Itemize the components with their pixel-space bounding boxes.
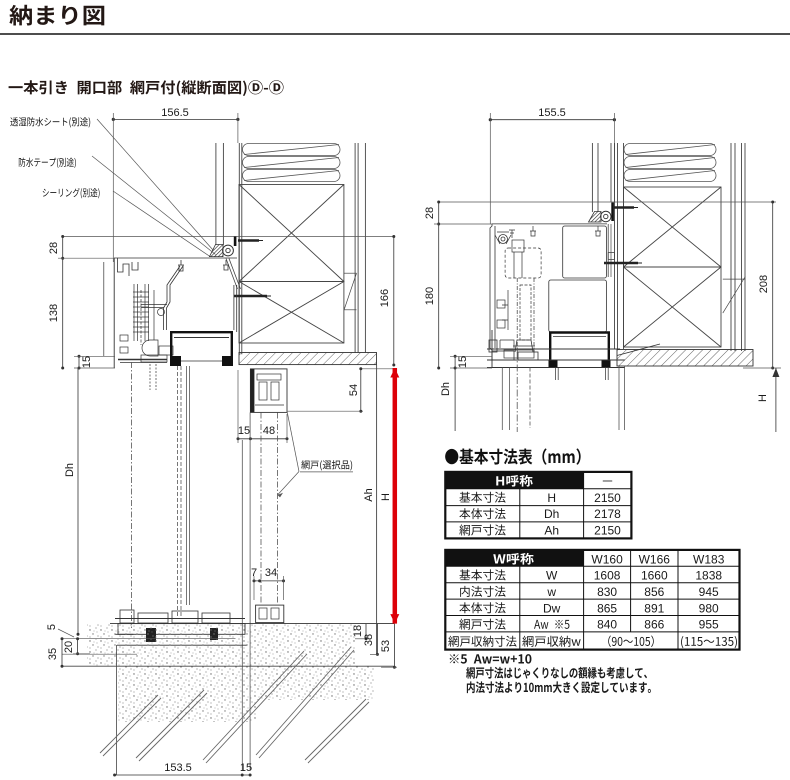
svg-text:138: 138 — [48, 304, 60, 322]
svg-text:53: 53 — [380, 640, 392, 652]
svg-text:891: 891 — [644, 601, 664, 615]
svg-text:840: 840 — [597, 618, 617, 632]
svg-text:166: 166 — [379, 289, 391, 307]
svg-text:2150: 2150 — [594, 524, 621, 538]
svg-text:15: 15 — [238, 425, 250, 437]
svg-text:W166: W166 — [639, 553, 671, 567]
svg-text:208: 208 — [758, 275, 770, 293]
svg-text:28: 28 — [424, 207, 436, 219]
svg-text:W183: W183 — [693, 553, 725, 567]
svg-text:1608: 1608 — [594, 569, 621, 583]
svg-text:866: 866 — [644, 618, 664, 632]
svg-text:153.5: 153.5 — [164, 762, 192, 774]
svg-text:15: 15 — [457, 356, 469, 368]
svg-text:Ah: Ah — [544, 524, 559, 538]
svg-text:w: w — [546, 585, 556, 599]
svg-text:H: H — [547, 491, 556, 505]
svg-text:W: W — [546, 569, 558, 583]
svg-text:1660: 1660 — [641, 569, 668, 583]
svg-text:54: 54 — [348, 384, 360, 396]
svg-text:865: 865 — [597, 601, 617, 615]
svg-text:20: 20 — [63, 641, 75, 653]
svg-text:980: 980 — [699, 601, 719, 615]
svg-text:155.5: 155.5 — [538, 107, 566, 119]
svg-text:H: H — [380, 493, 392, 501]
svg-text:Dw: Dw — [543, 601, 561, 615]
svg-text:156.5: 156.5 — [161, 107, 189, 119]
svg-text:2178: 2178 — [594, 507, 621, 521]
svg-text:38: 38 — [363, 634, 375, 646]
svg-text:28: 28 — [48, 242, 60, 254]
svg-text:Dh: Dh — [544, 507, 559, 521]
svg-text:15: 15 — [240, 762, 252, 774]
svg-text:2150: 2150 — [594, 491, 621, 505]
svg-text:1838: 1838 — [695, 569, 722, 583]
svg-text:856: 856 — [644, 585, 664, 599]
svg-text:5: 5 — [46, 624, 58, 630]
svg-text:955: 955 — [699, 618, 719, 632]
svg-text:H: H — [757, 394, 769, 402]
svg-text:830: 830 — [597, 585, 617, 599]
svg-text:Ah: Ah — [363, 488, 375, 501]
svg-text:Dh: Dh — [64, 463, 76, 477]
svg-text:35: 35 — [47, 648, 59, 660]
svg-text:180: 180 — [424, 287, 436, 305]
svg-text:48: 48 — [263, 425, 275, 437]
svg-text:7: 7 — [251, 567, 257, 579]
svg-text:15: 15 — [81, 356, 93, 368]
svg-text:W160: W160 — [591, 553, 623, 567]
svg-text:Dh: Dh — [440, 382, 452, 396]
svg-text:34: 34 — [265, 567, 277, 579]
svg-text:945: 945 — [699, 585, 719, 599]
